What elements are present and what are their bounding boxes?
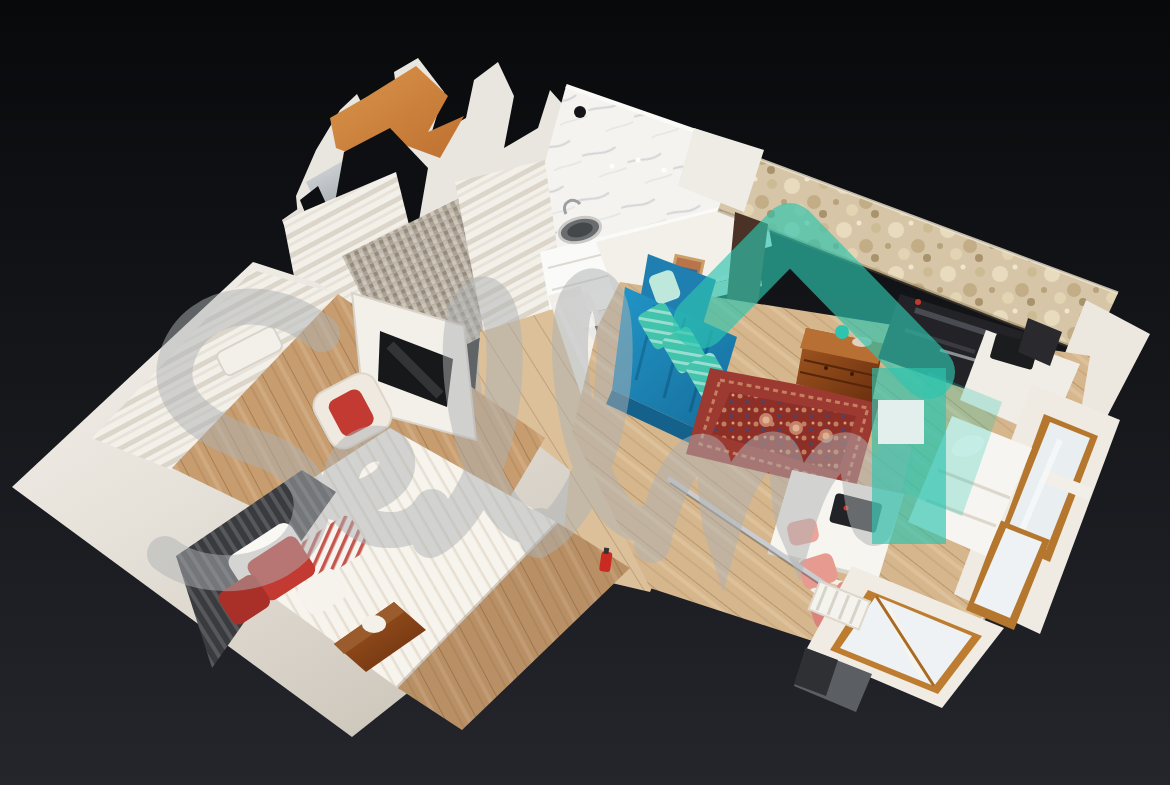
screenshot-stage: Sellmi xyxy=(0,0,1170,785)
wall-hole xyxy=(574,106,586,118)
dollhouse-3d-viewport[interactable] xyxy=(0,0,1170,785)
house-door-notch xyxy=(878,400,924,444)
lamp xyxy=(362,615,386,633)
red-indicator xyxy=(915,299,921,305)
